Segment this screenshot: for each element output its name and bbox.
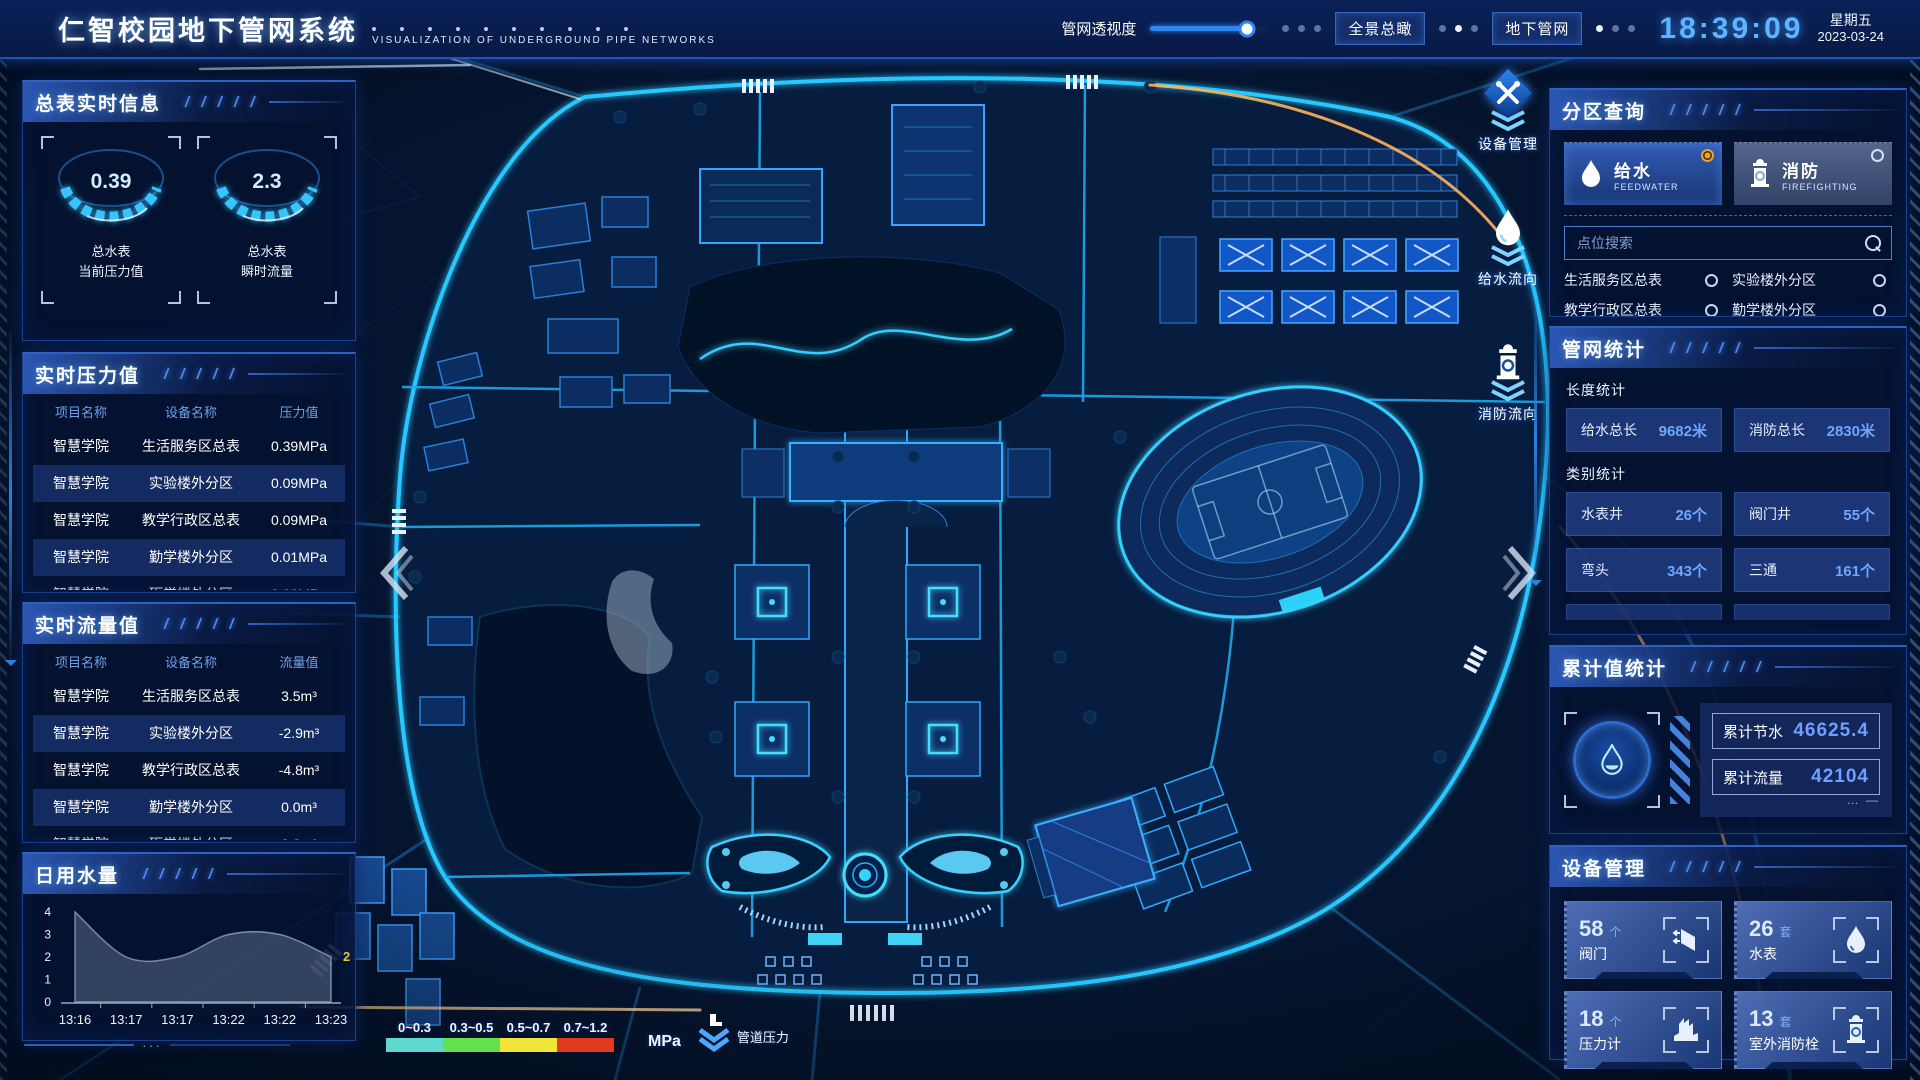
title-ornament: / / / / / (164, 366, 238, 383)
clock-time: 18:39:09 (1659, 12, 1803, 46)
waterdrop-icon (1491, 208, 1525, 248)
stat-chip: 消防总长2830米 (1734, 408, 1890, 452)
search-input[interactable] (1575, 234, 1819, 252)
hatch-ornament (1670, 716, 1690, 804)
panel-network-stats: 管网统计/ / / / / 长度统计 给水总长9682米 消防总长2830米 类… (1549, 326, 1907, 635)
svg-text:2.3: 2.3 (252, 170, 281, 193)
legend-range-label: 0.3~0.5 (450, 1020, 494, 1035)
gauge-pressure: 0.39 总水表当前压力值 (41, 136, 181, 304)
stat-chip: 三通161个 (1734, 548, 1890, 592)
title-ornament: / / / / / (1670, 340, 1744, 357)
panel-devices: 设备管理/ / / / / 58个阀门 26套水表 18个压力计 (1549, 845, 1907, 1060)
dashboard: 仁智校园地下管网系统 VISUALIZATION OF UNDERGROUND … (0, 0, 1920, 1080)
pressure-legend: 0~0.3 0.3~0.5 0.5~0.7 0.7~1.2 MPa 管道压力 (386, 1012, 789, 1052)
zone-point[interactable]: 勤学楼外分区 (1732, 300, 1892, 317)
dot-separator (1596, 25, 1635, 32)
app-subtitle-block: VISUALIZATION OF UNDERGROUND PIPE NETWOR… (372, 12, 716, 46)
slider-thumb[interactable] (1239, 20, 1256, 37)
panel-title: 实时压力值 (35, 361, 140, 388)
system-toggle-firefighting[interactable]: 消防FIREFIGHTING (1734, 142, 1892, 205)
stat-chip: 给水总长9682米 (1566, 408, 1722, 452)
panel-title: 总表实时信息 (35, 89, 161, 116)
left-edge-ornament (0, 60, 7, 1080)
zone-point[interactable]: 生活服务区总表 (1564, 270, 1724, 290)
device-card-pressure-gauge[interactable]: 18个压力计 (1564, 991, 1722, 1069)
panel-title: 分区查询 (1562, 97, 1646, 124)
svg-text:13:22: 13:22 (264, 1012, 297, 1027)
device-card-watermeter[interactable]: 26套水表 (1734, 901, 1892, 979)
ornament-dashes: … — (1712, 793, 1880, 807)
legend-swatch (557, 1038, 614, 1052)
hydrant-icon (1748, 159, 1772, 189)
pipe-pressure-icon (697, 1012, 731, 1052)
panel-meter-info: 总表实时信息/ / / / / 0.39 总水表当前压力值 2.3 (22, 80, 356, 341)
stat-chip: 水表井26个 (1566, 492, 1722, 536)
gauge-dial: 2.3 (203, 136, 331, 240)
svg-text:1: 1 (44, 973, 51, 987)
legend-swatch (443, 1038, 500, 1052)
map-control-fire-flow[interactable]: 消防流向 (1458, 340, 1558, 424)
map-control-water-flow[interactable]: 给水流向 (1458, 205, 1558, 289)
title-ornament: / / / / / (1670, 102, 1744, 119)
table-row[interactable]: 智慧学院勤学楼外分区0.0m³ (33, 789, 345, 826)
legend-note: 管道压力 (737, 1027, 789, 1046)
waterdrop-icon (1599, 744, 1625, 776)
svg-text:13:17: 13:17 (161, 1012, 194, 1027)
legend-range-label: 0.5~0.7 (507, 1020, 551, 1035)
radio-unselected[interactable] (1871, 149, 1884, 162)
svg-text:0: 0 (44, 995, 51, 1009)
table-row[interactable]: 智慧学院砺学楼外分区0.00MPa (33, 576, 345, 590)
slider-fill (1150, 26, 1247, 31)
top-header: 仁智校园地下管网系统 VISUALIZATION OF UNDERGROUND … (0, 0, 1920, 59)
length-stats-label: 长度统计 (1566, 380, 1890, 400)
stat-chip: 弯头343个 (1566, 548, 1722, 592)
cumulative-item: 累计节水46625.4 (1712, 713, 1880, 749)
gauge-flow: 2.3 总水表瞬时流量 (197, 136, 337, 304)
dot-separator (1439, 25, 1478, 32)
table-row[interactable]: 智慧学院教学行政区总表0.09MPa (33, 502, 345, 539)
panorama-button[interactable]: 全景总瞰 (1335, 12, 1425, 45)
panel-title: 累计值统计 (1562, 654, 1667, 681)
app-title: 仁智校园地下管网系统 (58, 9, 358, 48)
system-toggle-feedwater[interactable]: 给水FEEDWATER (1564, 142, 1722, 205)
building-library (700, 169, 822, 243)
legend-range-label: 0~0.3 (398, 1020, 431, 1035)
dorm-rows (1213, 149, 1457, 217)
panel-pressure: 实时压力值/ / / / / 项目名称设备名称压力值 智慧学院生活服务区总表0.… (22, 352, 356, 593)
title-ornament: / / / / / (1670, 859, 1744, 876)
building-hall (892, 105, 984, 225)
cumulative-item: 累计流量42104 (1712, 759, 1880, 795)
table-header: 项目名称设备名称流量值 (33, 648, 345, 678)
daily-water-chart: 0123413:1613:1713:1713:2213:2213:232 (27, 898, 351, 1040)
point-radio[interactable] (1873, 304, 1886, 317)
svg-text:2: 2 (44, 950, 51, 964)
table-row[interactable]: 智慧学院实验楼外分区0.09MPa (33, 465, 345, 502)
title-ornament: / / / / / (1691, 659, 1765, 676)
title-ornament: / / / / / (164, 616, 238, 633)
panel-flow: 实时流量值/ / / / / 项目名称设备名称流量值 智慧学院生活服务区总表3.… (22, 602, 356, 843)
clock-date: 2023-03-24 (1818, 29, 1885, 45)
panel-title: 实时流量值 (35, 611, 140, 638)
clock-date-block: 星期五 2023-03-24 (1818, 12, 1885, 46)
map-control-label: 给水流向 (1478, 269, 1538, 289)
tools-icon (1493, 78, 1523, 108)
panel-daily-water: 日用水量/ / / / / 0123413:1613:1713:1713:221… (22, 852, 356, 1041)
title-ornament: / / / / / (143, 866, 217, 883)
panel-title: 管网统计 (1562, 335, 1646, 362)
zone-point[interactable]: 教学行政区总表 (1564, 300, 1724, 317)
left-rail-ornament (9, 330, 12, 660)
svg-text:13:22: 13:22 (212, 1012, 245, 1027)
map-control-label: 消防流向 (1478, 404, 1538, 424)
device-card-hydrant[interactable]: 13套室外消防栓 (1734, 991, 1892, 1069)
underground-network-button[interactable]: 地下管网 (1492, 12, 1582, 45)
gauge-label: 总水表当前压力值 (78, 242, 143, 281)
table-row[interactable]: 智慧学院砺学楼外分区2.3m³ (33, 826, 345, 840)
table-row[interactable]: 智慧学院勤学楼外分区0.01MPa (33, 539, 345, 576)
legend-range-label: 0.7~1.2 (564, 1020, 608, 1035)
radio-selected[interactable] (1701, 149, 1714, 162)
svg-text:2: 2 (343, 949, 350, 964)
gauge-dial: 0.39 (47, 136, 175, 240)
map-control-device-management[interactable]: 设备管理 (1458, 70, 1558, 154)
device-card-valve[interactable]: 58个阀门 (1564, 901, 1722, 979)
dot-separator (1282, 25, 1321, 32)
header-dots-row (372, 27, 716, 31)
gauge-label: 总水表瞬时流量 (241, 242, 293, 281)
table-header: 项目名称设备名称压力值 (33, 398, 345, 428)
hydrant-icon (1493, 344, 1523, 382)
cumulative-values: 累计节水46625.4 累计流量42104 … — (1700, 703, 1892, 817)
panel-title: 日用水量 (35, 861, 119, 888)
table-row[interactable]: 智慧学院教学行政区总表-4.8m³ (33, 752, 345, 789)
svg-text:3: 3 (44, 928, 51, 942)
svg-text:4: 4 (44, 905, 51, 919)
table-row[interactable]: 智慧学院生活服务区总表0.39MPa (33, 428, 345, 465)
legend-swatch (500, 1038, 557, 1052)
svg-text:13:17: 13:17 (110, 1012, 143, 1027)
point-radio[interactable] (1705, 274, 1718, 287)
bottom-progress-ornament: ··· (24, 1044, 290, 1046)
search-icon[interactable] (1865, 235, 1881, 251)
svg-text:13:16: 13:16 (59, 1012, 92, 1027)
category-stats-label: 类别统计 (1566, 464, 1890, 484)
right-rail-ornament (1534, 300, 1537, 580)
table-row[interactable]: 智慧学院实验楼外分区-2.9m³ (33, 715, 345, 752)
panel-cumulative: 累计值统计/ / / / / 累计节水46625.4 累计流量42104 … — (1549, 645, 1907, 834)
cumulative-water-icon-frame (1564, 712, 1660, 808)
point-radio[interactable] (1705, 304, 1718, 317)
table-row[interactable]: 智慧学院生活服务区总表3.5m³ (33, 678, 345, 715)
point-search[interactable] (1564, 226, 1892, 260)
app-subtitle: VISUALIZATION OF UNDERGROUND PIPE NETWOR… (372, 35, 716, 46)
svg-text:13:23: 13:23 (315, 1012, 348, 1027)
right-edge-ornament (1910, 60, 1920, 1080)
map-nav-left-arrow[interactable] (376, 544, 414, 602)
clock-weekday: 星期五 (1830, 12, 1872, 30)
transparency-label: 管网透视度 (1061, 18, 1136, 39)
legend-unit: MPa (648, 1033, 681, 1051)
zone-point[interactable]: 实验楼外分区 (1732, 270, 1892, 290)
legend-swatch (386, 1038, 443, 1052)
title-ornament: / / / / / (185, 94, 259, 111)
map-control-label: 设备管理 (1478, 134, 1538, 154)
panel-title: 设备管理 (1562, 854, 1646, 881)
stat-chip: 阀门井55个 (1734, 492, 1890, 536)
transparency-slider[interactable] (1150, 26, 1268, 31)
svg-text:0.39: 0.39 (91, 170, 132, 193)
waterdrop-icon (1578, 159, 1604, 189)
panel-zone-query: 分区查询/ / / / / 给水FEEDWATER 消防FIREFIGHTING… (1549, 88, 1907, 317)
point-radio[interactable] (1873, 274, 1886, 287)
